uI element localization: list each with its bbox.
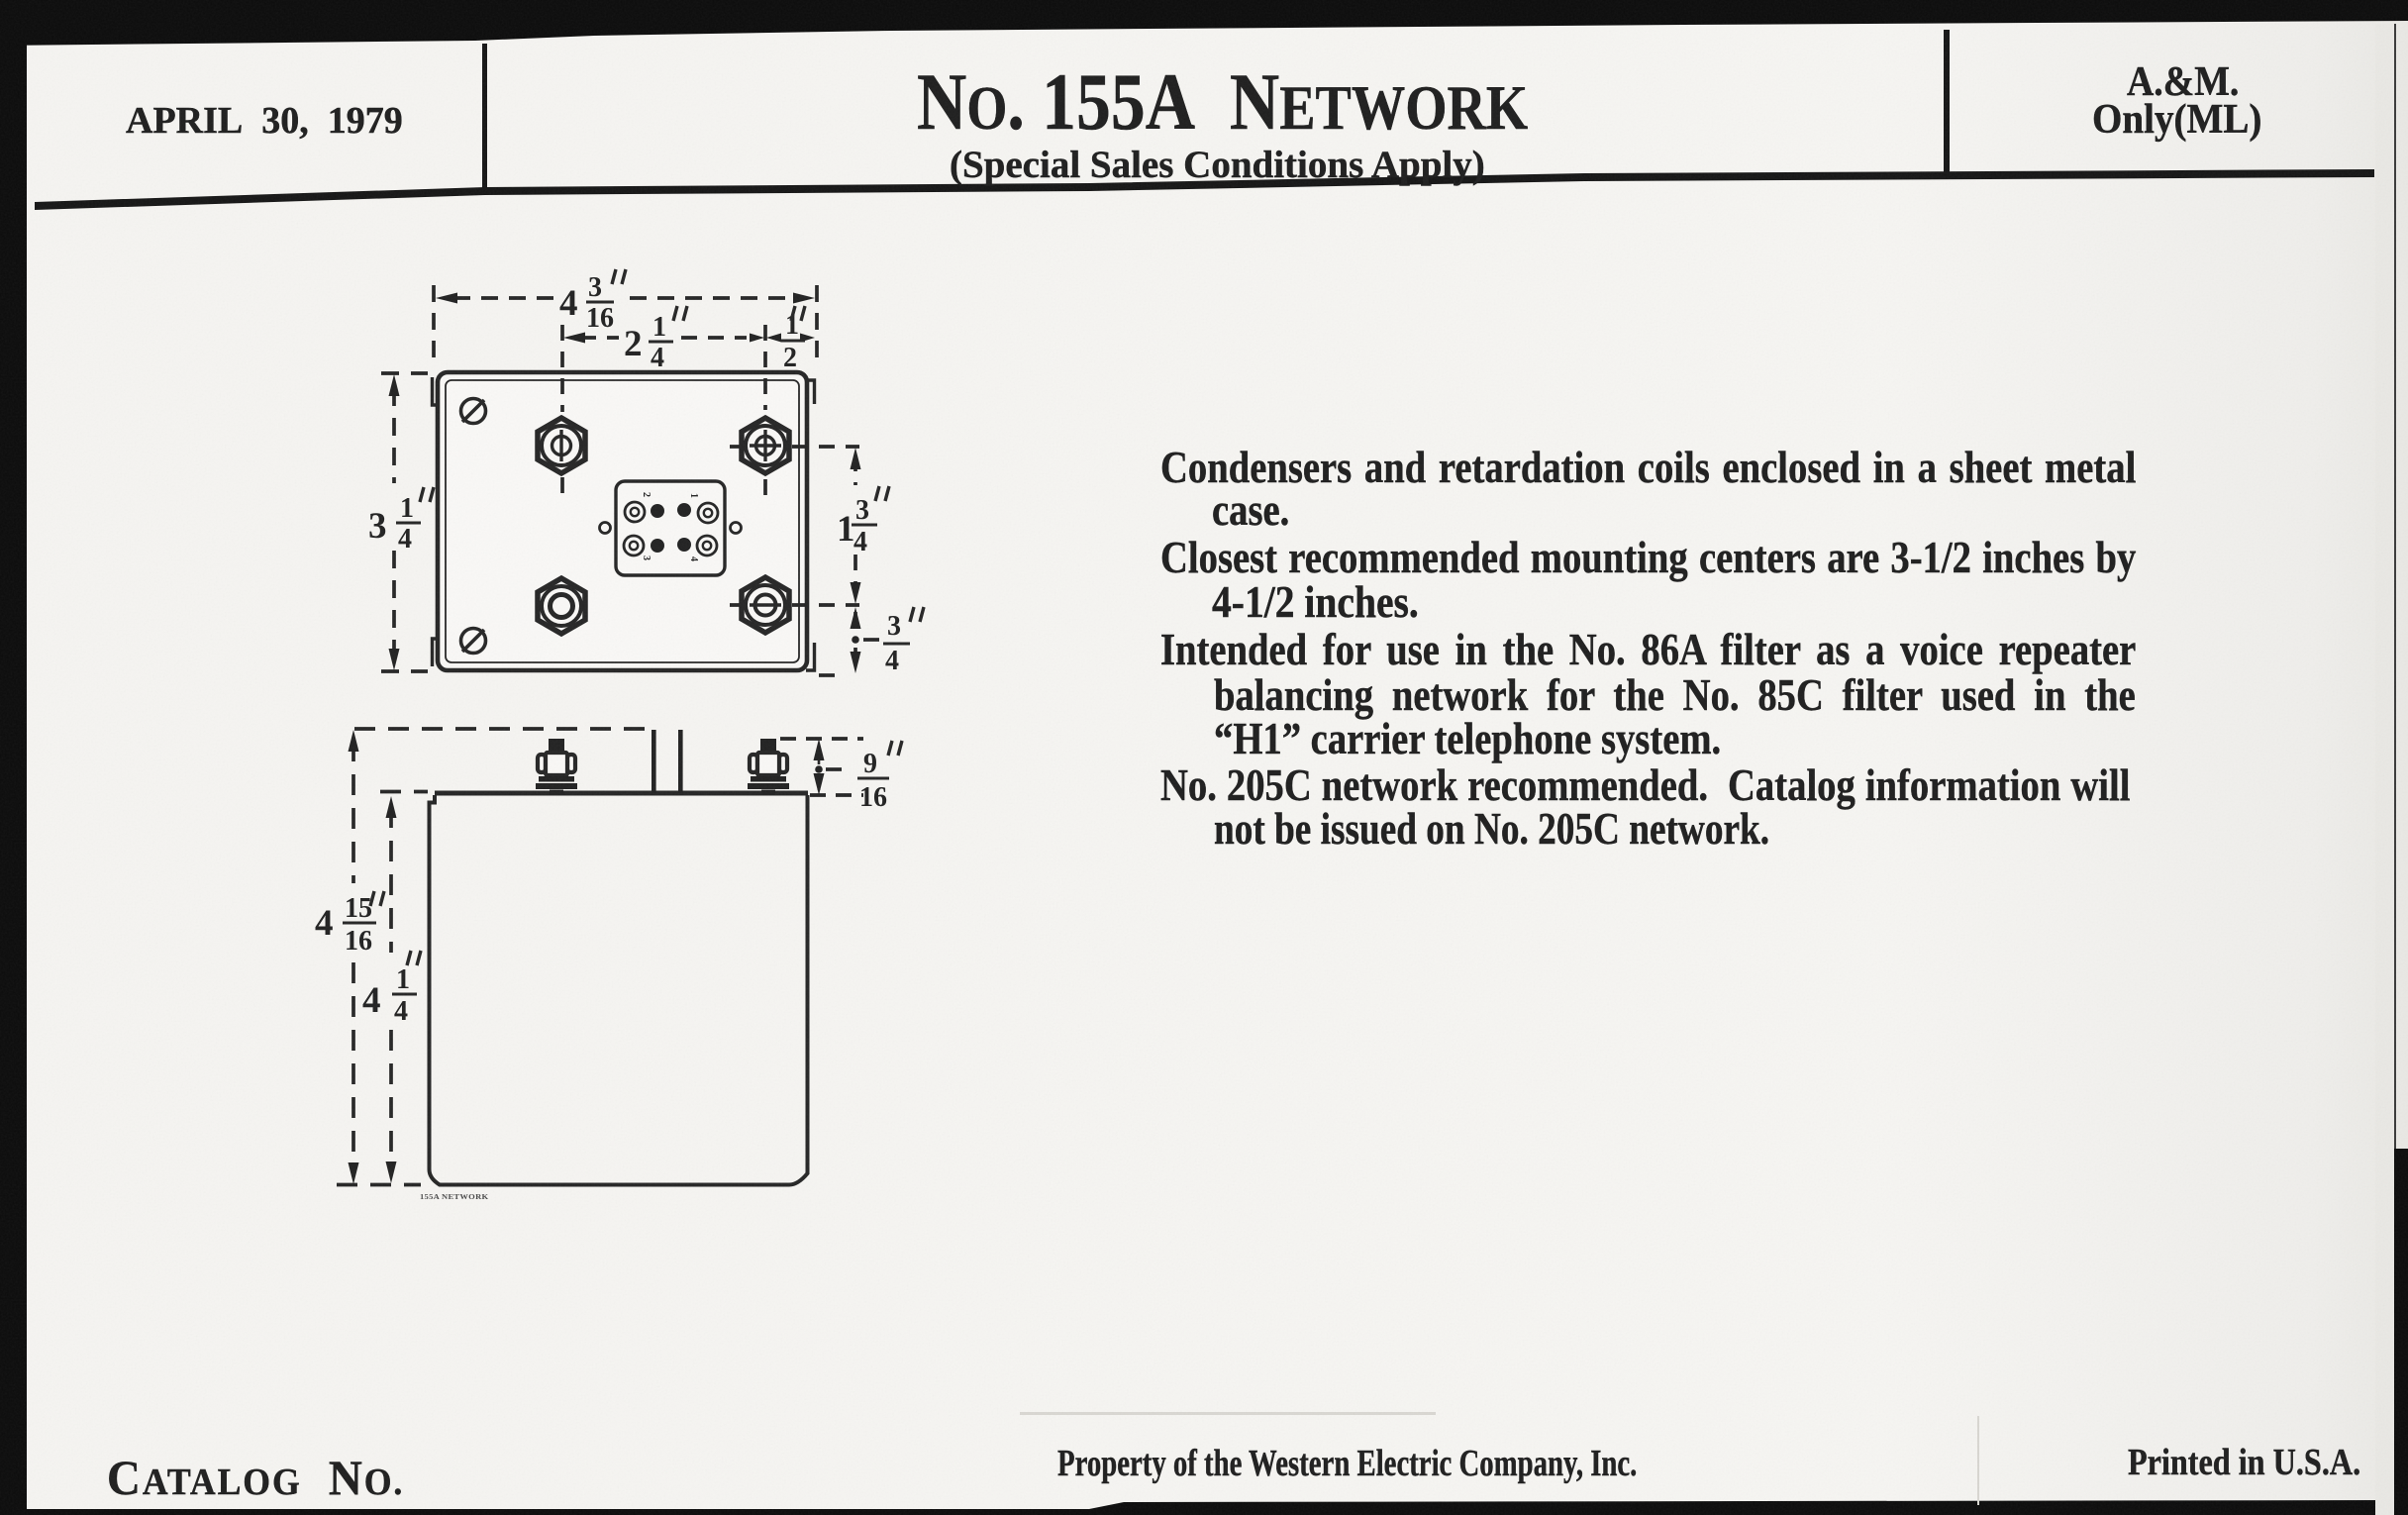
svg-text:15: 15 <box>345 893 372 924</box>
svg-text:3: 3 <box>887 611 901 642</box>
svg-text:2: 2 <box>624 324 643 364</box>
svg-text:4: 4 <box>394 996 408 1027</box>
svg-text:4: 4 <box>853 527 867 557</box>
svg-text:4: 4 <box>315 903 334 944</box>
svg-text:1: 1 <box>396 964 410 995</box>
svg-text:4: 4 <box>398 524 412 555</box>
svg-text:1: 1 <box>400 493 414 524</box>
svg-text:16: 16 <box>345 926 372 957</box>
svg-text:4: 4 <box>362 980 381 1021</box>
svg-text:4: 4 <box>885 646 899 676</box>
svg-text:4: 4 <box>651 343 664 373</box>
svg-text:1: 1 <box>688 493 699 498</box>
svg-text:155A NETWORK: 155A NETWORK <box>420 1192 489 1201</box>
svg-text:9: 9 <box>863 749 877 779</box>
svg-text:3: 3 <box>855 495 869 526</box>
svg-text:3: 3 <box>641 555 652 560</box>
svg-text:1: 1 <box>837 509 855 550</box>
svg-text:16: 16 <box>859 782 887 813</box>
svg-text:1: 1 <box>652 312 666 343</box>
svg-text:4: 4 <box>688 556 699 561</box>
svg-text:3: 3 <box>368 506 387 547</box>
svg-text:2: 2 <box>783 343 797 373</box>
svg-text:3: 3 <box>588 272 602 303</box>
svg-text:16: 16 <box>586 303 614 334</box>
svg-text:2: 2 <box>641 492 652 497</box>
svg-text:4: 4 <box>559 283 578 324</box>
